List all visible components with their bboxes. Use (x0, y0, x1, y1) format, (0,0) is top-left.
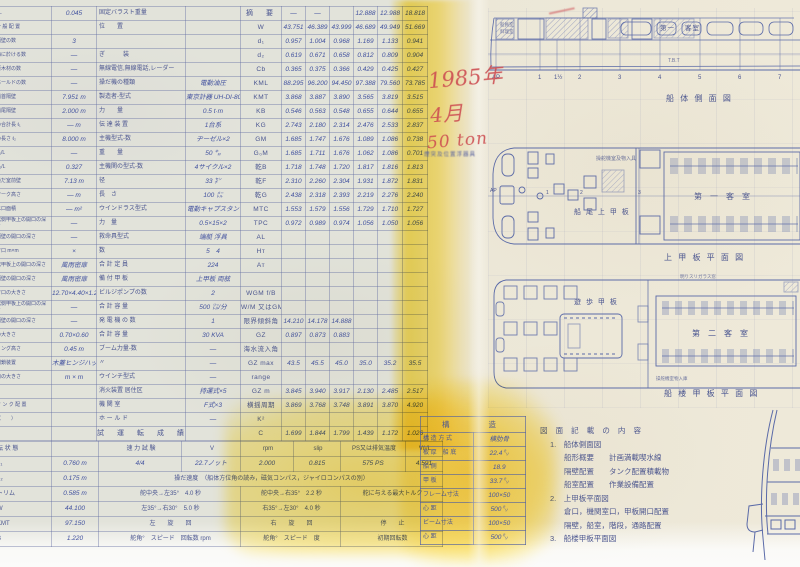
trial-cell: rpm (241, 442, 294, 457)
trial-cell: 右35°→左30° 4.0 秒 (241, 502, 341, 517)
hydro-value: 1.727 (403, 203, 428, 217)
hydro-value: 43.999 (330, 21, 354, 35)
hydro-value: 12.888 (354, 7, 378, 21)
spec-value-b: 500 ㍑/分 (186, 301, 241, 315)
spec-value-b: 5 4 (186, 245, 241, 259)
spec-label-a: 舷側甲板上の開口の深さ (0, 301, 52, 315)
hydro-symbol: 摘 要 (241, 7, 282, 21)
spec-value-a: — (52, 301, 97, 315)
hydro-value: 45.5 (306, 357, 330, 371)
hydro-value (306, 413, 330, 427)
frame-label: 5 (698, 75, 702, 81)
structure-label: フレーム寸法 (421, 489, 474, 503)
hydro-value (306, 371, 330, 385)
spec-value-b: 電動キャプスタン (186, 203, 241, 217)
spec-value-b: F式×3 (186, 399, 241, 413)
trial-row: d₁0.760 m4/422.7ノット2.0000.815575 PS4.591 (0, 457, 443, 472)
boat-deck-plan-drawing: 遊 歩 甲 板 第 二 客 室 明りスリガラス窓 操舵機室物入庫 船 楼 甲 板… (488, 266, 800, 406)
hydro-value (282, 259, 306, 273)
hydro-value (354, 301, 378, 315)
spec-row: 操だ室前壁7.13 m径33 ㌢乾F2.3102.2602.3041.9311.… (0, 175, 428, 189)
spec-value-a: × (52, 245, 97, 259)
hydro-value: 1.747 (306, 133, 330, 147)
spec-row: 一 般 配 置位 置W43.75146.38943.99946.68949.94… (0, 21, 428, 35)
spec-label-a: （ ） (0, 413, 52, 427)
hydro-value: 1.056 (354, 217, 378, 231)
spec-label-a: 倉口の大きさ (0, 287, 52, 301)
spec-row: 消火装置 居住区持運式×5GZ m3.8453.9403.9172.1302.4… (0, 385, 428, 399)
contents-line: 1. 船体側面図 (540, 438, 790, 452)
hydro-value: 2.180 (306, 119, 330, 133)
trial-cell: d₂ (0, 472, 52, 487)
hydro-value: 2.517 (403, 385, 428, 399)
frame-label: 2 (578, 75, 582, 81)
hydro-value (403, 301, 428, 315)
structure-row: ビーム寸法100×50 (421, 517, 526, 531)
trial-cell: 0.760 m (52, 457, 99, 472)
hydro-symbol: 乾B (241, 161, 282, 175)
spec-value-b (186, 49, 241, 63)
spec-value-a: — m (52, 119, 97, 133)
spec-value-b: — (186, 357, 241, 371)
trial-cell: 舵角° スピード 度 (241, 532, 341, 547)
spec-row: の合計長 ℓ₁— m伝 達 装 置1台系KG2.7432.1802.3142.4… (0, 119, 428, 133)
hydro-symbol: C (241, 427, 282, 441)
spec-label-a (0, 385, 52, 399)
hydro-value (330, 231, 354, 245)
hydro-value: 2.837 (403, 119, 428, 133)
frame-label: 1½ (554, 74, 562, 81)
trial-cell (52, 442, 99, 457)
hydro-value (282, 343, 306, 357)
trial-cell: 転 状 態 (0, 442, 52, 457)
hydro-value: 0.644 (378, 105, 403, 119)
spec-row: 舷甲板上の開口の深さ風雨密扉合 計 定 員224Aт (0, 259, 428, 273)
hydro-value: 2.485 (378, 385, 403, 399)
spec-value-b: 電動油圧 (186, 77, 241, 91)
structure-value: 22.4㍉ (473, 447, 526, 461)
spec-value-b: 1 (186, 315, 241, 329)
hydro-value (378, 329, 403, 343)
spec-row: 水口面積— m²ウインドラス型式電動キャプスタンMTC1.5531.5791.5… (0, 203, 428, 217)
hydro-value (378, 371, 403, 385)
hydro-value (282, 301, 306, 315)
spec-value-b: 224 (186, 259, 241, 273)
spec-label-b: 試 運 転 成 績 (97, 427, 186, 441)
hydro-value (403, 371, 428, 385)
spec-value-a: — (52, 49, 97, 63)
hydro-value: 0.546 (282, 105, 306, 119)
hydro-symbol: Aт (241, 259, 282, 273)
hydro-value: 1.872 (378, 175, 403, 189)
spec-label-b: 製造者-型式 (97, 91, 186, 105)
spec-label-b: 合 計 容 量 (97, 301, 186, 315)
spec-row: 隔壁の開口の深さ—救命具型式端艇 浮具AL (0, 231, 428, 245)
frame-label: 6 (738, 75, 742, 81)
spec-value-a: — (52, 315, 97, 329)
hydro-value: 1.050 (378, 217, 403, 231)
spec-value-a: 12.70×4.40×1.20 (52, 287, 97, 301)
hydro-value: 1.931 (354, 175, 378, 189)
hydro-value (306, 245, 330, 259)
trial-row: トリム0.585 m舵中央→左35° 4.0 秒舵中央→右35° 2.2 秒舵に… (0, 487, 443, 502)
trial-cell: 575 PS (341, 457, 406, 472)
spec-value-a: — (52, 77, 97, 91)
spec-label-a: タ ン ク 配 置 (0, 399, 52, 413)
trial-cell: 0.585 m (52, 487, 99, 502)
ap-label: AP (490, 188, 497, 194)
trial-cell: 右 旋 回 (241, 517, 341, 532)
hydro-value (330, 371, 354, 385)
spec-value-a: 8.000 m (52, 133, 97, 147)
hydro-value: 3.870 (378, 399, 403, 413)
hydro-value: 14.888 (330, 315, 354, 329)
spec-row: の大きさ0.70×0.60合 計 容 量30 KVAGZ0.8970.8730.… (0, 329, 428, 343)
structure-row: 構 造 方 式横肋骨 (421, 433, 526, 447)
hydro-value: 0.671 (306, 49, 330, 63)
contents-list: 図 面 記 載 の 内 容1. 船体側面図船形概要 計画満載喫水線隔壁配置 タン… (540, 424, 790, 546)
hydro-value: 73.785 (403, 77, 428, 91)
small-blue-annotation: 煙突及位置浮器具 (424, 150, 476, 158)
hydro-value: 3.868 (282, 91, 306, 105)
hydro-value: 2.438 (282, 189, 306, 203)
hydro-symbol: KB (241, 105, 282, 119)
hydro-value: 0.429 (354, 63, 378, 77)
spec-row: 隔壁の開口の深さ—発 電 機 の 数1限界傾斜角14.21014.17814.8… (0, 315, 428, 329)
trial-cell: B (0, 532, 52, 547)
spec-row: ホールドの数—操だ機の種類電動油圧KML88.29596.20094.45097… (0, 77, 428, 91)
spec-value-b: ヂーゼル×2 (186, 133, 241, 147)
spec-label-a: 隔壁の開口の深さ (0, 273, 52, 287)
spec-row: の長さ ℓ₂8.000 m主機型式-数ヂーゼル×2GM1.6851.7471.6… (0, 133, 428, 147)
hydro-value: 0.873 (306, 329, 330, 343)
spec-value-a: — m (52, 189, 97, 203)
spec-label-b: 〃 (97, 357, 186, 371)
spec-value-b: 4サイクル×2 (186, 161, 241, 175)
hydro-value: 49.949 (378, 21, 403, 35)
spec-label-a: 口の大きさ (0, 371, 52, 385)
hydro-value: 0.897 (282, 329, 306, 343)
spec-row: 倉口 m×m×数5 4Hт (0, 245, 428, 259)
spec-label-a: B₁/L (0, 147, 52, 161)
structure-box: 構 造 構 造 方 式横肋骨板 厚 船 底22.4㍉船 側18.9甲 板33.7… (420, 416, 526, 545)
hydro-value: 2.314 (330, 119, 354, 133)
spec-label-b: 位 置 (97, 21, 186, 35)
spec-value-b (186, 427, 241, 441)
hydro-value: 79.560 (378, 77, 403, 91)
window-box-label: 客室 (685, 23, 700, 32)
hydro-symbol: 乾G (241, 189, 282, 203)
spec-label-a: 船首隔壁 (0, 91, 52, 105)
spec-label-a: ミング高さ (0, 343, 52, 357)
trial-cell: 44.100 (52, 502, 99, 517)
spec-row: 舷側甲板上の開口の深さ—合 計 容 量500 ㍑/分W/M 又はGM (0, 301, 428, 315)
spec-label-b: 備 付 甲 板 (97, 273, 186, 287)
spec-value-b: 持運式×5 (186, 385, 241, 399)
hydro-value: 35.5 (403, 357, 428, 371)
spec-row: B₂/L0.327主機関の型式-数4サイクル×2乾B1.7181.7481.72… (0, 161, 428, 175)
hydro-value: 3.515 (403, 91, 428, 105)
hydro-value (378, 343, 403, 357)
hydro-value (354, 329, 378, 343)
hydro-symbol: KMT (241, 91, 282, 105)
spec-value-b: 2 (186, 287, 241, 301)
spec-value-a (52, 427, 97, 441)
trial-cell: 0.815 (294, 457, 341, 472)
spec-table-body: r/L0.045固定バラスト重量摘 要——12.88812.98818.818一… (0, 7, 428, 441)
hydro-value (306, 287, 330, 301)
spec-value-a: 2.000 m (52, 105, 97, 119)
hydro-symbol (241, 273, 282, 287)
spec-label-a: 水口面積 (0, 203, 52, 217)
spec-label-b: 合 計 容 量 (97, 329, 186, 343)
hydro-value: 1.748 (306, 161, 330, 175)
hydro-value: 1.676 (330, 133, 354, 147)
trial-row: KMT97.150左 旋 回右 旋 回停 止 (0, 517, 443, 532)
hydro-symbol: W (241, 21, 282, 35)
hydro-value (354, 315, 378, 329)
hydro-symbol: 乾F (241, 175, 282, 189)
hydro-value: 0.425 (378, 63, 403, 77)
spec-label-a: 舷甲板上の開口の深さ (0, 259, 52, 273)
hydro-value: 43.5 (282, 357, 306, 371)
hydro-value (330, 7, 354, 21)
hydro-value: 1.062 (354, 147, 378, 161)
hydro-value (403, 231, 428, 245)
trial-cell: 1.220 (52, 532, 99, 547)
window-box-label: 第一 (660, 23, 675, 32)
hydro-value: 2.260 (306, 175, 330, 189)
spec-label-a: 原木材の数 (0, 63, 52, 77)
hydro-value: 1.799 (330, 427, 354, 441)
frame-label: 7 (778, 75, 782, 81)
hydro-value: 2.318 (306, 189, 330, 203)
spec-value-b: 33 ㌢ (186, 175, 241, 189)
trial-cell: 左35°→右30° 5.0 秒 (99, 502, 241, 517)
spec-value-a: 0.70×0.60 (52, 329, 97, 343)
spec-label-a: の合計長 ℓ₁ (0, 119, 52, 133)
trial-cell: 舵中央→右35° 2.2 秒 (241, 487, 341, 502)
hydro-symbol: GZ (241, 329, 282, 343)
spec-label-b: ウインドラス型式 (97, 203, 186, 217)
hydro-value (378, 287, 403, 301)
hydro-value (378, 259, 403, 273)
spec-row: r/L0.045固定バラスト重量摘 要——12.88812.98818.818 (0, 7, 428, 21)
hydro-symbol: TPC (241, 217, 282, 231)
spec-value-b: 50 ㌔ (186, 147, 241, 161)
spec-label-b: 伝 達 装 置 (97, 119, 186, 133)
hydro-symbol: d₂ (241, 49, 282, 63)
hydro-value (282, 287, 306, 301)
hydro-value: 0.619 (282, 49, 306, 63)
hydro-value: 2.130 (354, 385, 378, 399)
spec-label-b: 径 (97, 175, 186, 189)
hydro-value: 1.831 (403, 175, 428, 189)
spec-value-a: — (52, 231, 97, 245)
hydro-value: 2.393 (330, 189, 354, 203)
hydro-value: 0.989 (306, 217, 330, 231)
spec-label-b: 機 関 室 (97, 399, 186, 413)
hydro-value: 4.920 (403, 399, 428, 413)
spec-row: 舷側甲板上の開口の深さ—力 量0.5×15×2TPC0.9720.9890.97… (0, 217, 428, 231)
hydro-value (403, 245, 428, 259)
spec-value-b: 上甲板 両舷 (186, 273, 241, 287)
side-elevation-drawing: AP11½234567 船員室 料理室 T.B.T 第一 客室 船 体 側 面 … (488, 6, 800, 140)
hydro-value: 1.711 (306, 147, 330, 161)
hydro-value: 12.988 (378, 7, 403, 21)
hydro-value: 3.565 (354, 91, 378, 105)
hydro-value: 0.809 (378, 49, 403, 63)
hydro-value (306, 231, 330, 245)
hydro-value (354, 371, 378, 385)
hydro-value (330, 287, 354, 301)
hydro-value: — (306, 7, 330, 21)
hydro-value (306, 343, 330, 357)
hydro-value (403, 287, 428, 301)
hydro-value: 3.890 (330, 91, 354, 105)
hydro-value: 1.439 (354, 427, 378, 441)
hydro-value: 0.941 (403, 35, 428, 49)
structure-label: 板 厚 船 底 (421, 447, 474, 461)
hydro-symbol: KML (241, 77, 282, 91)
structure-label: 心 距 (421, 503, 474, 517)
structure-label: 甲 板 (421, 475, 474, 489)
hydro-value: 0.563 (306, 105, 330, 119)
structure-row: 甲 板33.7㍉ (421, 475, 526, 489)
spec-label-b: 主機関の型式-数 (97, 161, 186, 175)
hydro-value: 0.655 (354, 105, 378, 119)
hydro-value: 94.450 (330, 77, 354, 91)
spec-value-b: 100 ㍍ (186, 189, 241, 203)
upper-deck-title: 上 甲 板 平 面 図 (664, 252, 745, 262)
hydro-value: 1.844 (306, 427, 330, 441)
hydro-value: 2.276 (378, 189, 403, 203)
hydro-value: 2.743 (282, 119, 306, 133)
hydro-value: 1.729 (354, 203, 378, 217)
spec-value-a: 7.13 m (52, 175, 97, 189)
trial-cell: 速 力 試 験 (99, 442, 182, 457)
hydro-value (282, 413, 306, 427)
hydro-value: 1.699 (282, 427, 306, 441)
hydro-value: 1.718 (282, 161, 306, 175)
structure-row: 船 側18.9 (421, 461, 526, 475)
hydro-value: 0.366 (330, 63, 354, 77)
spec-value-b (186, 35, 241, 49)
spec-value-a: — (52, 217, 97, 231)
hydro-value: 2.240 (403, 189, 428, 203)
spec-row: 試 運 転 成 績C1.6991.8441.7991.4391.1721.026 (0, 427, 428, 441)
spec-row: （ ）ホ ー ル ド—K² (0, 413, 428, 427)
structure-value: 100×50 (473, 517, 526, 531)
hydro-value (330, 343, 354, 357)
hydro-value (330, 301, 354, 315)
trial-row: d₂0.175 m操だ速度 （船体方位角の読み，磁気コンパス，ジャイロコンパスの… (0, 472, 443, 487)
spec-value-a: — (52, 63, 97, 77)
trial-cell: 2.000 (241, 457, 294, 472)
hydro-value (330, 245, 354, 259)
hydro-value: 43.751 (282, 21, 306, 35)
spec-row: マーク高さ— m長 さ100 ㍍乾G2.4382.3182.3932.2192.… (0, 189, 428, 203)
frame-label: 4 (658, 75, 662, 81)
spec-label-b: 消火装置 居住区 (97, 385, 186, 399)
spec-label-b: 救命具型式 (97, 231, 186, 245)
hydro-value: 1.817 (354, 161, 378, 175)
spec-label-a: 海に於ける数 (0, 49, 52, 63)
trial-results-table: 転 状 態速 力 試 験VrpmslipPS又は排気温度V/√Ld₁0.760 … (0, 441, 418, 547)
hydro-symbol: KG (241, 119, 282, 133)
contents-line: 隔壁配置 タンク配置積載物 (540, 465, 790, 479)
spec-row: 隔壁の開口の深さ風雨密扉備 付 甲 板上甲板 両舷 (0, 273, 428, 287)
spec-label-a: ホールドの数 (0, 77, 52, 91)
trial-row: W44.100左35°→右30° 5.0 秒右35°→左30° 4.0 秒 (0, 502, 443, 517)
structure-value: 100×50 (473, 489, 526, 503)
hydro-value: 3.869 (282, 399, 306, 413)
spec-value-a (52, 21, 97, 35)
structure-box-body: 構 造 構 造 方 式横肋骨板 厚 船 底22.4㍉船 側18.9甲 板33.7… (421, 417, 526, 545)
trial-cell: 操だ速度 （船体方位角の読み，磁気コンパス，ジャイロコンパスの別） (99, 472, 443, 487)
spec-row: ミング高さ0.45 mブーム力量-数—海水流入角 (0, 343, 428, 357)
trial-cell: 0.175 m (52, 472, 99, 487)
hydro-symbol: W/M 又はGM (241, 301, 282, 315)
spec-label-b: 力 量 (97, 105, 186, 119)
spec-row: 口の大きさm × mウインチ型式—range (0, 371, 428, 385)
hydro-value (378, 315, 403, 329)
structure-row: フレーム寸法100×50 (421, 489, 526, 503)
frame-label: 1 (538, 75, 542, 81)
hydro-symbol: GM (241, 133, 282, 147)
deck-frame-numbers: 123 (546, 190, 641, 196)
spec-label-a: 隔壁の開口の深さ (0, 231, 52, 245)
hydro-value: 0.904 (403, 49, 428, 63)
spec-value-b (186, 7, 241, 21)
hydro-symbol: range (241, 371, 282, 385)
hydro-value: 0.957 (282, 35, 306, 49)
hydro-value: 0.738 (403, 133, 428, 147)
trial-cell: KMT (0, 517, 52, 532)
trial-table-body: 転 状 態速 力 試 験VrpmslipPS又は排気温度V/√Ld₁0.760 … (0, 442, 443, 547)
hydro-symbol: AL (241, 231, 282, 245)
stern-room-note: 船員室 (500, 21, 514, 28)
locker-note: 操舵機室物入庫 (656, 375, 688, 382)
tbt-note: T.B.T (668, 58, 680, 64)
spec-value-a: 0.327 (52, 161, 97, 175)
hydro-value (403, 329, 428, 343)
scanned-document-page: r/L0.045固定バラスト重量摘 要——12.88812.98818.818一… (0, 0, 800, 567)
spec-label-a: 一 般 配 置 (0, 21, 52, 35)
trial-cell: d₁ (0, 457, 52, 472)
contents-line: 3. 船楼甲板平面図 (540, 532, 790, 546)
spec-label-b: 数 (97, 245, 186, 259)
hydro-value: 3.768 (306, 399, 330, 413)
spec-value-b: 1台系 (186, 119, 241, 133)
hydro-symbol: WGM f/B (241, 287, 282, 301)
hydro-value (330, 259, 354, 273)
hydro-value: 46.689 (354, 21, 378, 35)
trial-cell: W (0, 502, 52, 517)
structure-label: 構 造 方 式 (421, 433, 474, 447)
spec-label-a: マーク高さ (0, 189, 52, 203)
structure-value: 500㍉ (473, 531, 526, 545)
trial-cell: 左 旋 回 (99, 517, 241, 532)
spec-label-b: 主機型式-数 (97, 133, 186, 147)
hydro-value (330, 273, 354, 287)
structure-row: 心 距500㍉ (421, 531, 526, 545)
structure-value: 33.7㍉ (473, 475, 526, 489)
hydro-value (306, 273, 330, 287)
hydro-symbol: G₀M (241, 147, 282, 161)
deck-frame-number: 2 (580, 190, 583, 196)
hydro-symbol: 横揺周期 (241, 399, 282, 413)
